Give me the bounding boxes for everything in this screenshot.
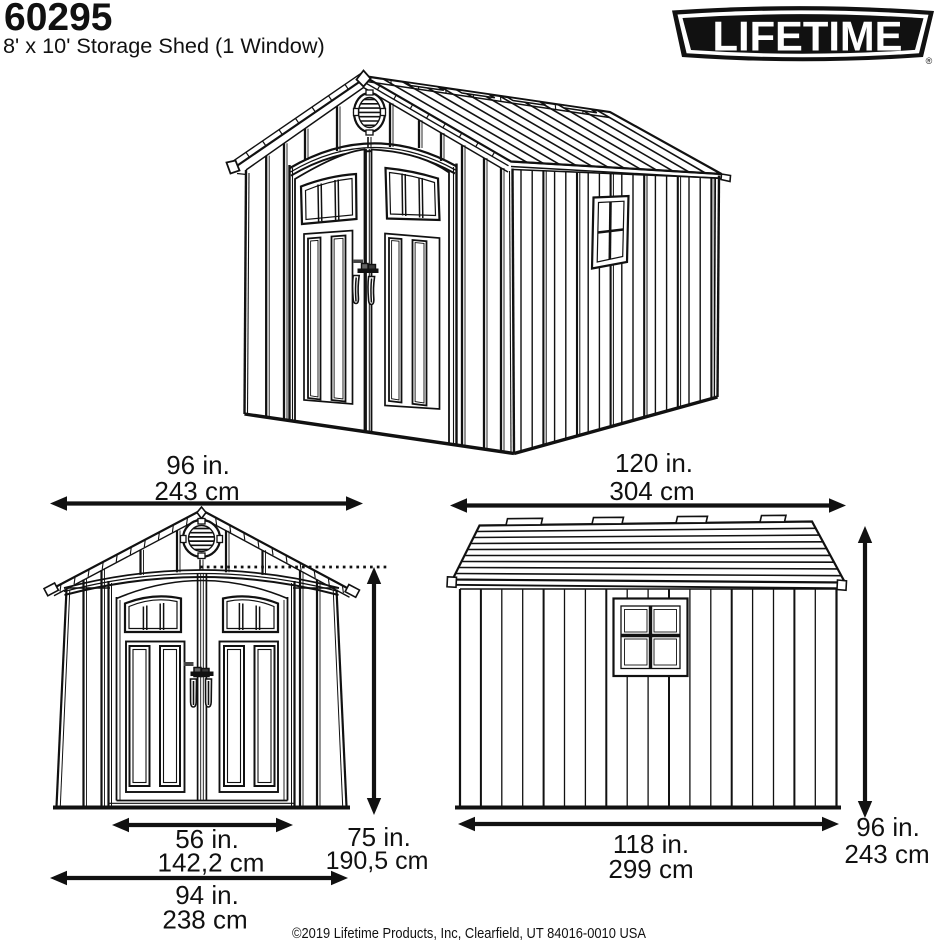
svg-text:LIFETIME: LIFETIME xyxy=(713,13,903,60)
svg-text:8' x 10' Storage Shed (1 Windo: 8' x 10' Storage Shed (1 Window) xyxy=(3,33,325,58)
svg-text:243 cm: 243 cm xyxy=(844,839,929,869)
svg-text:96 in.: 96 in. xyxy=(856,812,920,842)
svg-text:304 cm: 304 cm xyxy=(609,476,694,506)
svg-text:190,5 cm: 190,5 cm xyxy=(326,847,429,875)
svg-text:299 cm: 299 cm xyxy=(608,854,693,884)
svg-text:238 cm: 238 cm xyxy=(162,905,247,935)
svg-text:120 in.: 120 in. xyxy=(615,448,693,478)
svg-text:142,2 cm: 142,2 cm xyxy=(158,848,265,878)
svg-text:©2019 Lifetime Products, Inc,: ©2019 Lifetime Products, Inc, Clearfield… xyxy=(292,926,646,942)
svg-text:®: ® xyxy=(926,56,933,66)
